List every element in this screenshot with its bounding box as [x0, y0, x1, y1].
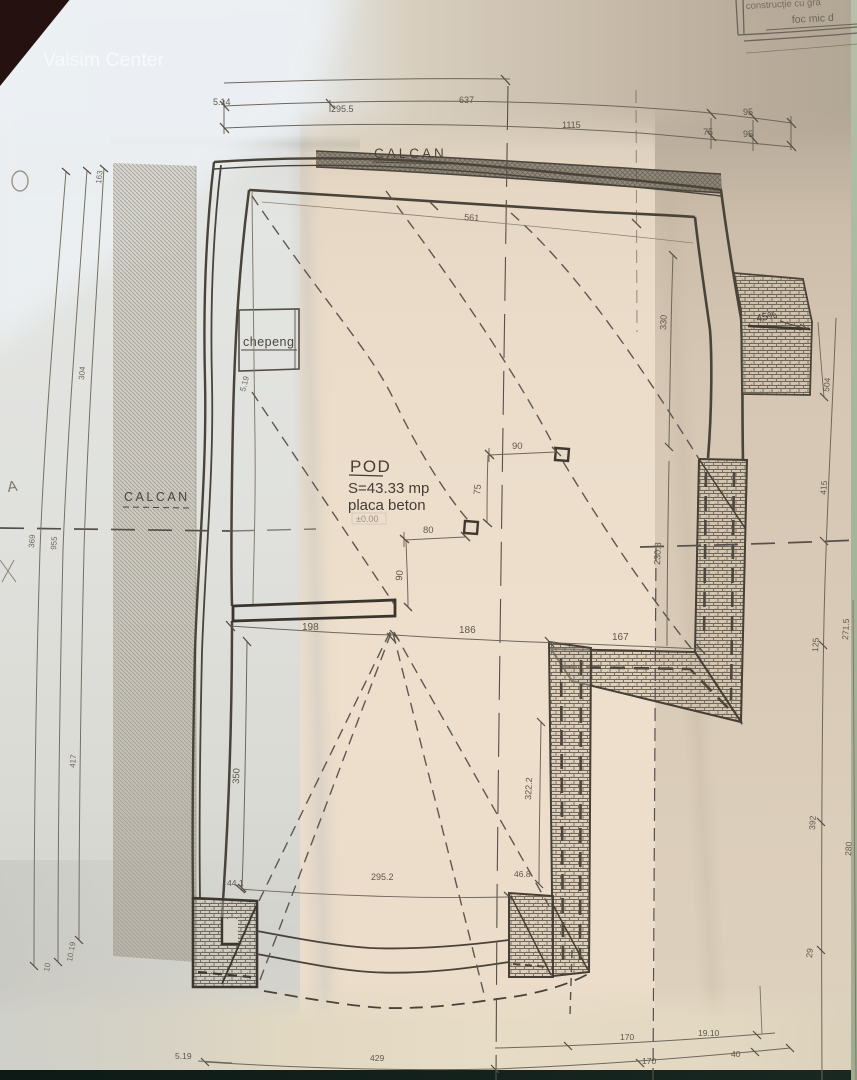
svg-text:placa beton: placa beton: [348, 497, 426, 514]
svg-text:350: 350: [231, 768, 243, 784]
svg-text:186: 186: [459, 625, 476, 636]
svg-text:95: 95: [743, 107, 753, 117]
svg-text:167: 167: [612, 632, 629, 643]
svg-text:chepeng: chepeng: [243, 335, 294, 349]
svg-text:561: 561: [464, 212, 480, 223]
svg-text:504: 504: [821, 377, 832, 392]
svg-text:CALCAN: CALCAN: [374, 146, 447, 161]
svg-text:1115: 1115: [562, 120, 581, 130]
svg-text:90: 90: [512, 441, 523, 452]
svg-text:POD: POD: [350, 457, 391, 476]
svg-text:429: 429: [370, 1053, 384, 1063]
svg-text:90: 90: [394, 570, 406, 581]
svg-text:foc mic d: foc mic d: [792, 12, 835, 26]
svg-text:295.5: 295.5: [331, 104, 354, 114]
svg-text:322.2: 322.2: [523, 777, 534, 800]
svg-text:304: 304: [77, 366, 87, 381]
svg-text:CALCAN: CALCAN: [124, 490, 190, 504]
svg-text:369: 369: [27, 534, 37, 549]
svg-text:230.8: 230.8: [652, 542, 663, 565]
svg-text:40: 40: [731, 1049, 741, 1059]
svg-text:10.19: 10.19: [65, 941, 77, 963]
svg-text:5.19: 5.19: [238, 375, 251, 393]
svg-text:295.2: 295.2: [371, 872, 394, 882]
svg-text:170: 170: [642, 1056, 656, 1066]
svg-text:198: 198: [302, 622, 319, 633]
svg-text:44.1: 44.1: [227, 878, 244, 888]
svg-text:415: 415: [818, 480, 829, 495]
svg-text:75: 75: [472, 484, 484, 495]
svg-text:construcţie cu gra: construcţie cu gra: [746, 0, 822, 12]
svg-text:280: 280: [843, 841, 854, 856]
svg-text:10: 10: [42, 961, 53, 972]
svg-text:163: 163: [94, 169, 105, 184]
svg-text:46.8: 46.8: [514, 869, 531, 879]
svg-text:19.10: 19.10: [698, 1028, 720, 1038]
svg-text:80: 80: [423, 525, 434, 536]
svg-text:S=43.33 mp: S=43.33 mp: [348, 480, 429, 497]
svg-text:5.14: 5.14: [213, 97, 231, 107]
svg-text:330: 330: [658, 315, 669, 331]
svg-text:955: 955: [49, 536, 59, 551]
svg-text:170: 170: [620, 1032, 634, 1042]
svg-text:271.5: 271.5: [840, 618, 851, 640]
svg-text:392: 392: [807, 815, 818, 830]
svg-text:637: 637: [459, 95, 474, 105]
svg-text:125: 125: [810, 637, 821, 652]
svg-text:A: A: [6, 478, 18, 496]
svg-text:95: 95: [743, 129, 753, 139]
svg-text:29: 29: [804, 948, 815, 959]
svg-text:417: 417: [68, 754, 78, 769]
svg-text:±0.00: ±0.00: [356, 514, 378, 524]
svg-text:75: 75: [703, 127, 713, 137]
svg-text:5.19: 5.19: [175, 1051, 192, 1061]
svg-text:Valsim Center: Valsim Center: [43, 49, 165, 71]
